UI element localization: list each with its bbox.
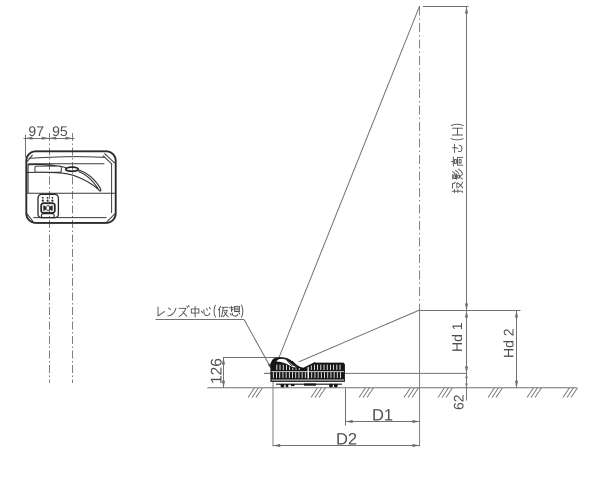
svg-text:97: 97	[28, 123, 44, 139]
svg-text:126: 126	[209, 358, 226, 384]
svg-text:D1: D1	[372, 406, 393, 424]
svg-text:D2: D2	[336, 430, 357, 448]
svg-text:62: 62	[451, 394, 467, 410]
svg-text:95: 95	[52, 123, 68, 139]
svg-text:Hd 1: Hd 1	[449, 322, 465, 352]
svg-text:Hd 2: Hd 2	[501, 328, 517, 358]
